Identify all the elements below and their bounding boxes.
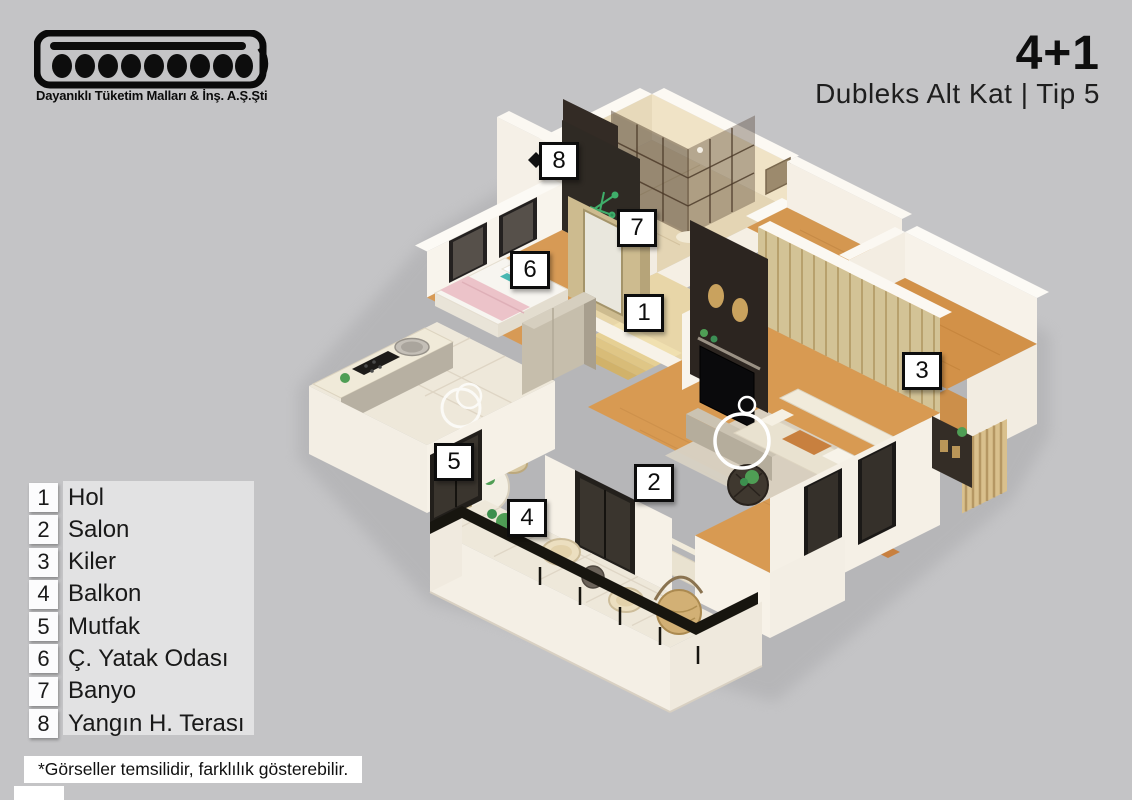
legend-number: 1	[29, 483, 58, 512]
legend-number: 8	[29, 709, 58, 738]
plan-subtitle: Dubleks Alt Kat | Tip 5	[680, 78, 1100, 110]
coffee-table	[728, 465, 768, 505]
legend: 1Hol2Salon3Kiler4Balkon5Mutfak6Ç. Yatak …	[29, 483, 245, 741]
legend-row--yatak-odas-: 6Ç. Yatak Odası	[29, 644, 245, 673]
room-marker-8: 8	[539, 142, 579, 180]
legend-label: Ç. Yatak Odası	[68, 645, 229, 673]
company-logo	[34, 30, 274, 95]
legend-number: 5	[29, 612, 58, 641]
legend-row-kiler: 3Kiler	[29, 548, 245, 577]
legend-label: Balkon	[68, 580, 141, 608]
legend-number: 4	[29, 580, 58, 609]
legend-row-banyo: 7Banyo	[29, 677, 245, 706]
legend-number: 6	[29, 644, 58, 673]
legend-label: Yangın H. Terası	[68, 710, 245, 738]
legend-label: Banyo	[68, 677, 136, 705]
plan-type-title: 4+1	[800, 26, 1100, 81]
room-marker-4: 4	[507, 499, 547, 537]
legend-label: Salon	[68, 516, 129, 544]
legend-label: Kiler	[68, 548, 116, 576]
legend-number: 3	[29, 548, 58, 577]
logo-tagline: Dayanıklı Tüketim Malları & İnş. A.Ş.Şti	[36, 88, 296, 103]
legend-number: 7	[29, 677, 58, 706]
legend-row-hol: 1Hol	[29, 483, 245, 512]
corner-box	[14, 786, 64, 800]
legend-number: 2	[29, 515, 58, 544]
legend-row-salon: 2Salon	[29, 515, 245, 544]
logo-mark	[34, 30, 274, 90]
room-marker-7: 7	[617, 209, 657, 247]
legend-row-mutfak: 5Mutfak	[29, 612, 245, 641]
legend-label: Mutfak	[68, 613, 140, 641]
counter-plant	[340, 373, 350, 383]
room-marker-3: 3	[902, 352, 942, 390]
room-marker-2: 2	[634, 464, 674, 502]
room-marker-1: 1	[624, 294, 664, 332]
legend-row-balkon: 4Balkon	[29, 580, 245, 609]
legend-row-yang-n-h-teras-: 8Yangın H. Terası	[29, 709, 245, 738]
room-marker-5: 5	[434, 443, 474, 481]
room-marker-6: 6	[510, 251, 550, 289]
disclaimer-note: *Görseller temsilidir, farklılık göstere…	[24, 756, 362, 783]
legend-label: Hol	[68, 484, 104, 512]
